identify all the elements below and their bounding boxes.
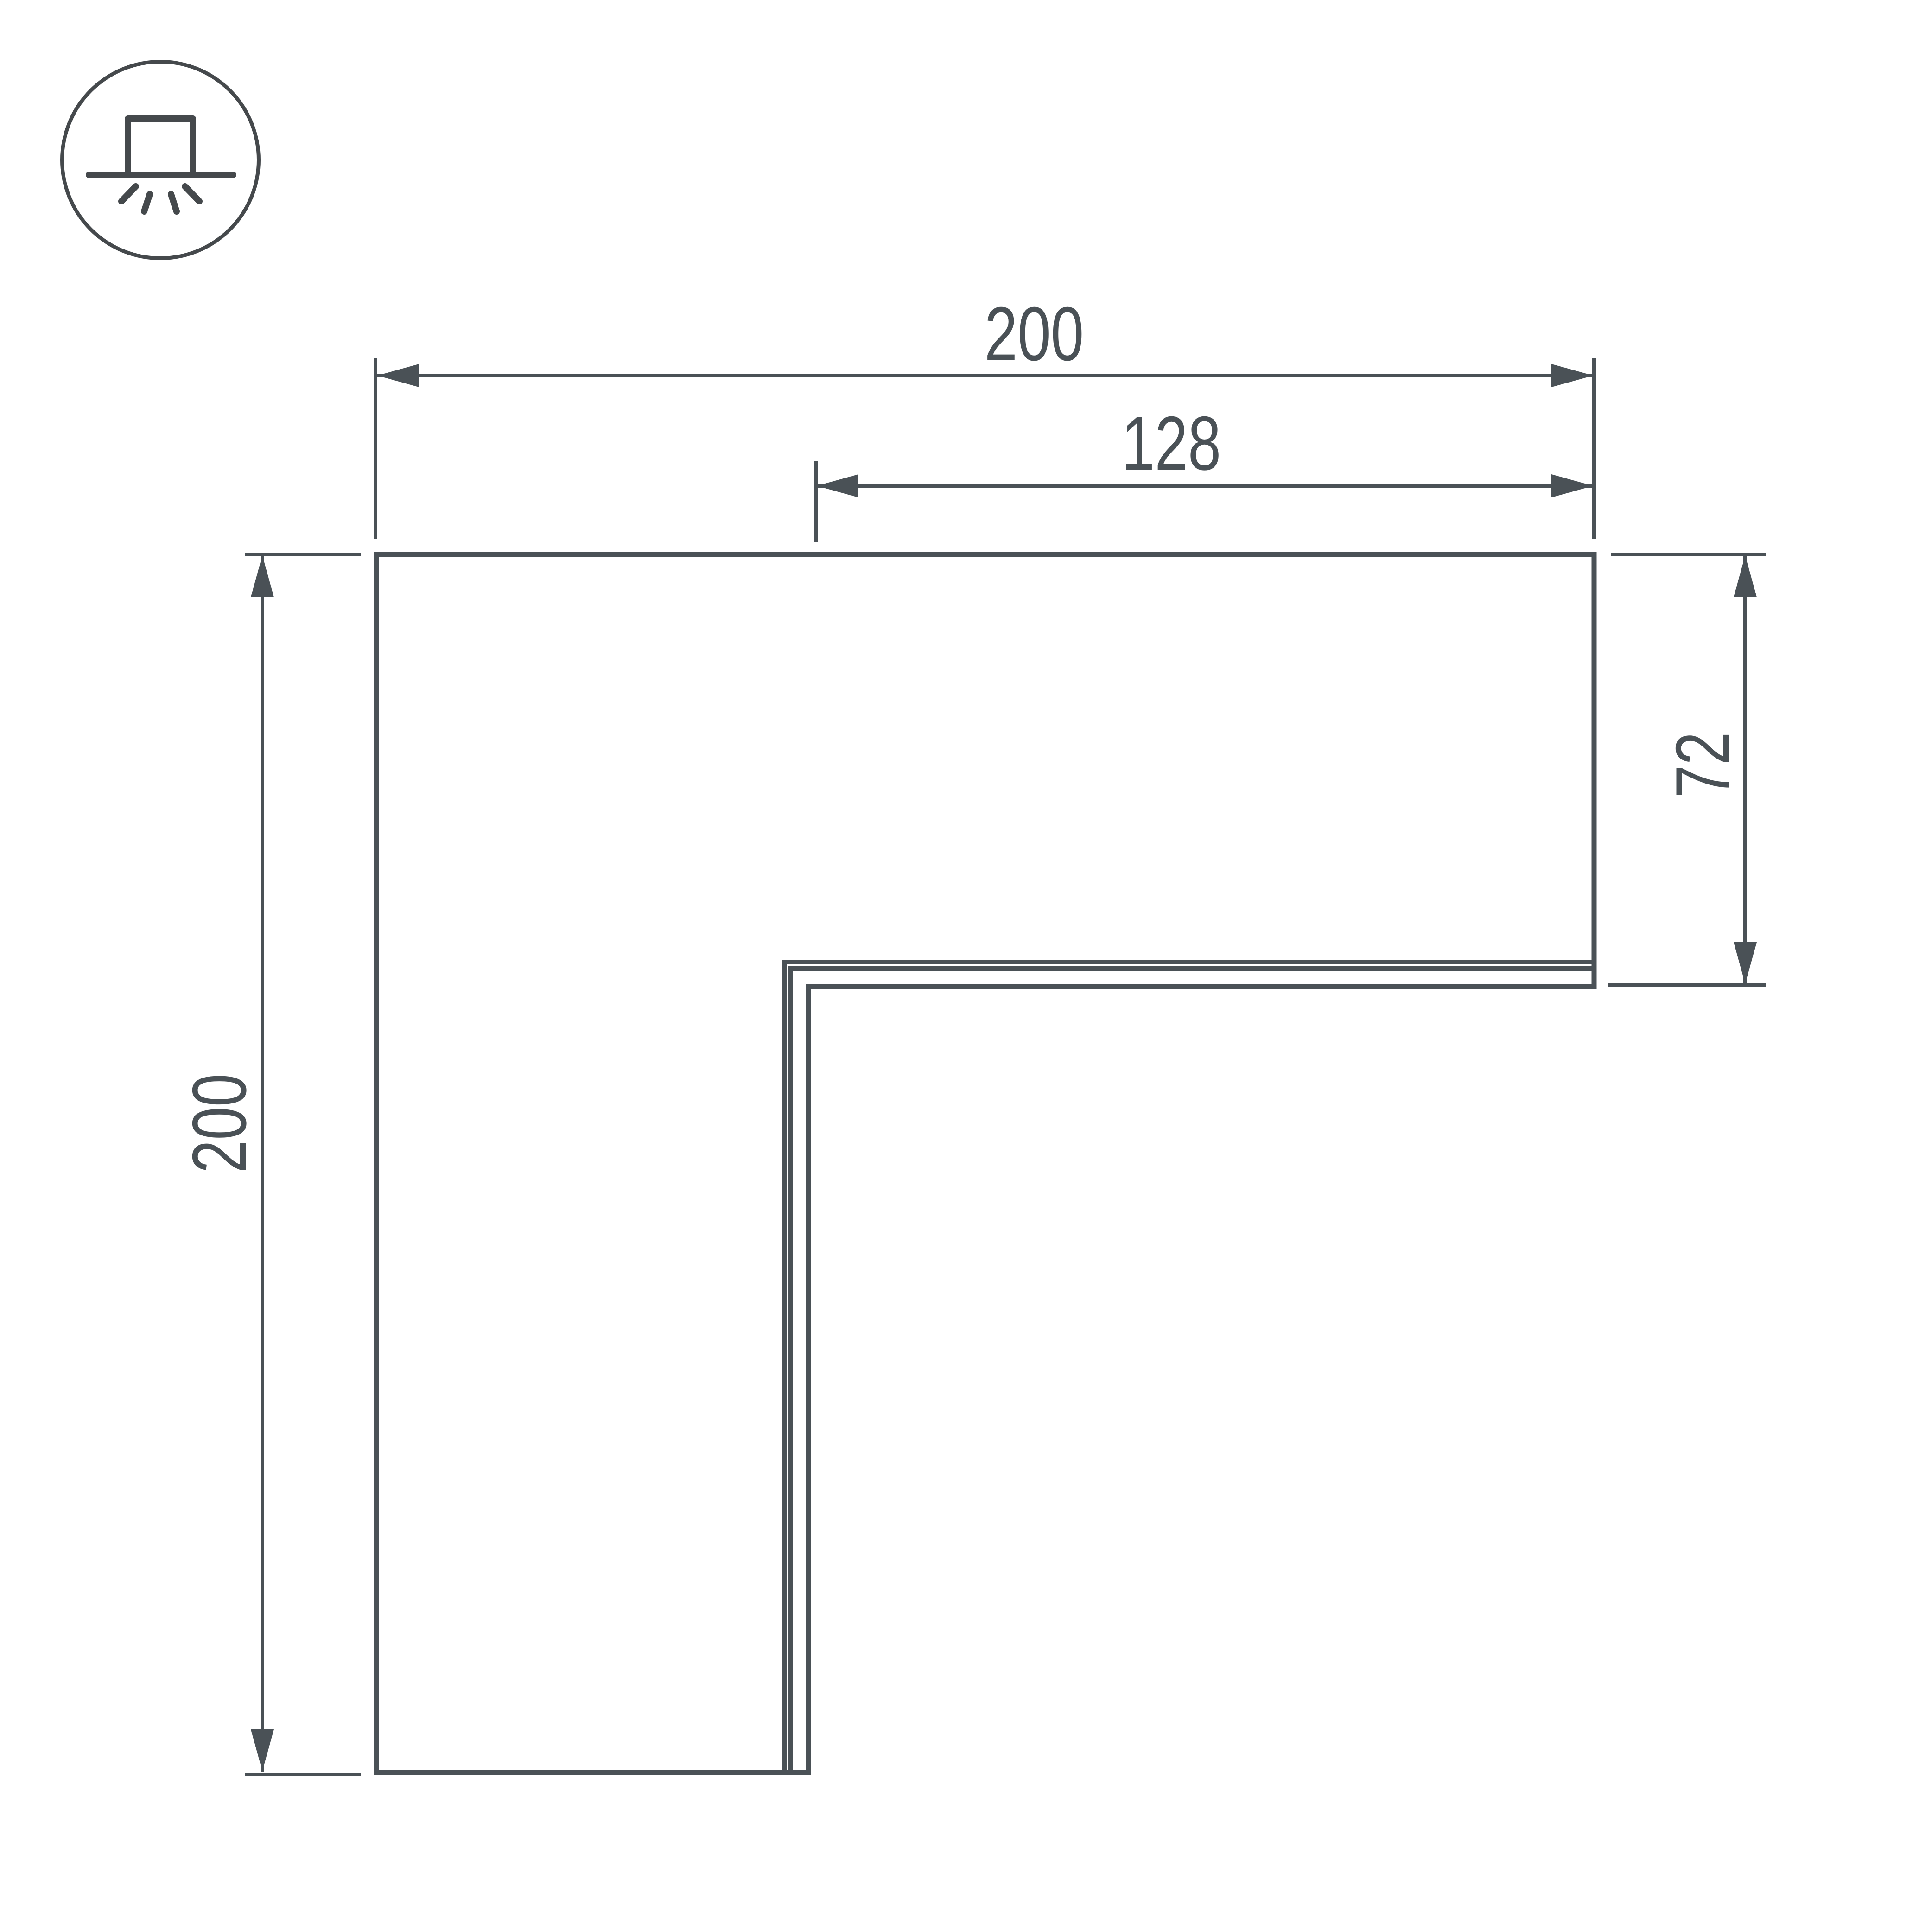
corner-seam-line-outer [791,969,1594,1773]
dim-arm-height: 72 [1608,555,1766,985]
dim-arrow-left-icon [377,364,419,387]
dim-arrow-down-icon [251,1729,274,1771]
profile-outline [376,555,1594,1773]
dim-arrow-down-icon [1734,942,1757,984]
profile-body [376,555,1594,1773]
drawing-page: 200 128 72 200 [0,0,1932,1932]
dim-arrow-left-icon [817,474,858,497]
icon-circle [62,62,259,258]
dim-label-overall-width: 200 [985,292,1084,377]
dim-overall-height: 200 [177,555,361,1774]
icon-light-ray [171,194,177,211]
corner-seam-line-inner [784,962,1594,1773]
dim-arrow-up-icon [1734,555,1757,597]
dim-partial-width: 128 [816,401,1594,542]
dim-label-overall-height: 200 [177,1074,262,1173]
dim-arrow-up-icon [251,555,274,597]
surface-mounted-light-icon [62,62,259,258]
drawing-canvas: 200 128 72 200 [0,0,1932,1932]
dim-label-partial-width: 128 [1122,401,1221,486]
dim-arrow-right-icon [1551,364,1593,387]
icon-fixture-box [128,119,193,173]
dim-arrow-right-icon [1551,474,1593,497]
icon-light-ray [144,194,150,211]
icon-light-ray [185,186,199,201]
dim-label-arm-height: 72 [1660,732,1746,798]
icon-light-ray [121,186,136,201]
dim-overall-width: 200 [375,292,1594,539]
